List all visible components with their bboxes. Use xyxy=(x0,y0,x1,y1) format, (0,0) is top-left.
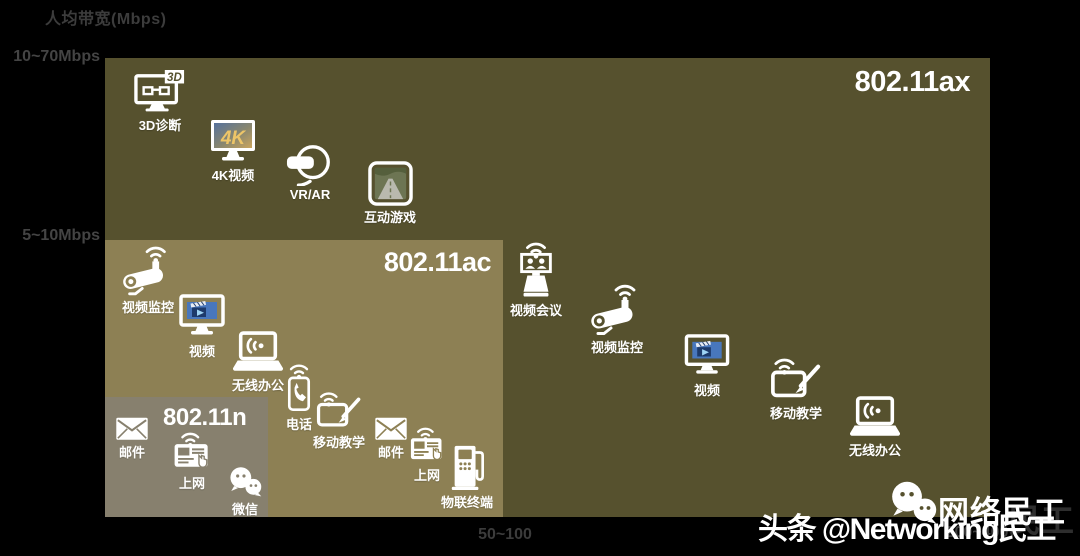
app-item-label: 视频监控 xyxy=(591,337,643,356)
monitor-4k-icon: 4K xyxy=(209,118,257,164)
app-item-label: 4K视频 xyxy=(212,165,255,184)
app-item: 微信 xyxy=(228,466,263,518)
app-item: 移动教学 xyxy=(313,390,365,451)
app-item: 上网 xyxy=(409,427,446,484)
game-screen-icon xyxy=(367,161,412,206)
tablet-pen-icon xyxy=(770,356,822,402)
watermark-toutiao-text: 头条 @Networking民工 xyxy=(758,504,1055,548)
app-item: VR/AR xyxy=(286,142,334,202)
app-item-label: VR/AR xyxy=(290,187,330,202)
tablet-browse-icon xyxy=(409,427,446,464)
app-item: 电话 xyxy=(284,362,314,433)
vr-headset-icon xyxy=(286,142,334,186)
monitor-3d-icon: 3D xyxy=(134,70,186,114)
app-item: 4K 4K视频 xyxy=(209,118,257,184)
y-axis-title: 人均带宽(Mbps) xyxy=(45,5,166,29)
wechat-icon xyxy=(228,466,263,498)
y-tick-10-70mbps: 10~70Mbps xyxy=(0,48,100,66)
app-item-label: 3D诊断 xyxy=(139,115,182,134)
iot-terminal-icon xyxy=(448,443,486,491)
app-item-label: 视频会议 xyxy=(510,300,562,319)
app-item: 视频监控 xyxy=(119,244,177,316)
app-item: 3D 3D诊断 xyxy=(134,70,186,134)
app-item-label: 互动游戏 xyxy=(364,207,416,226)
app-item: 视频 xyxy=(178,294,226,360)
app-item-label: 无线办公 xyxy=(849,440,901,459)
laptop-wifi-icon xyxy=(231,331,286,374)
app-item: 邮件 xyxy=(116,417,149,461)
app-item: 无线办公 xyxy=(231,331,286,394)
app-item: 视频 xyxy=(684,334,731,399)
app-item-label: 电话 xyxy=(286,414,312,433)
app-item-label: 邮件 xyxy=(119,442,145,461)
band-label-802-11ax: 802.11ax xyxy=(855,66,970,99)
app-item: 上网 xyxy=(172,432,212,492)
app-item: 视频监控 xyxy=(587,282,647,356)
app-item-label: 上网 xyxy=(179,473,205,492)
phone-wifi-icon xyxy=(284,362,314,413)
app-item-label: 移动教学 xyxy=(770,403,822,422)
envelope-icon xyxy=(116,417,149,441)
wifi-bandwidth-infographic: 人均带宽(Mbps) 10~70Mbps 5~10Mbps 802.11ax 8… xyxy=(0,0,1080,556)
app-item-label: 视频监控 xyxy=(122,297,174,316)
video-conference-icon xyxy=(513,240,559,299)
app-item-label: 微信 xyxy=(232,499,258,518)
app-item-label: 物联终端 xyxy=(441,492,493,511)
cctv-camera-icon xyxy=(587,282,647,336)
svg-text:4K: 4K xyxy=(220,128,247,149)
app-item-label: 视频 xyxy=(694,380,720,399)
laptop-wifi-icon xyxy=(848,396,903,439)
band-label-802-11ac: 802.11ac xyxy=(384,247,491,278)
y-tick-5-10mbps: 5~10Mbps xyxy=(0,227,100,245)
x-tick-50-100: 50~100 xyxy=(463,526,547,544)
app-item-label: 邮件 xyxy=(378,442,404,461)
app-item: 无线办公 xyxy=(848,396,903,459)
envelope-icon xyxy=(375,417,408,441)
app-item-label: 上网 xyxy=(414,465,440,484)
app-item: 移动教学 xyxy=(770,356,822,422)
app-item: 视频会议 xyxy=(510,240,562,319)
app-item-label: 视频 xyxy=(189,341,215,360)
tablet-browse-icon xyxy=(172,432,212,472)
app-item: 互动游戏 xyxy=(364,161,416,226)
app-item: 物联终端 xyxy=(441,443,493,511)
svg-text:3D: 3D xyxy=(167,72,182,84)
cctv-camera-icon xyxy=(119,244,177,296)
app-item: 邮件 xyxy=(375,417,408,461)
app-item-label: 移动教学 xyxy=(313,432,365,451)
monitor-video-icon xyxy=(178,294,226,340)
app-item-label: 无线办公 xyxy=(232,375,284,394)
monitor-video-icon xyxy=(684,334,731,379)
tablet-pen-icon xyxy=(316,390,362,431)
band-label-802-11n: 802.11n xyxy=(163,404,246,432)
